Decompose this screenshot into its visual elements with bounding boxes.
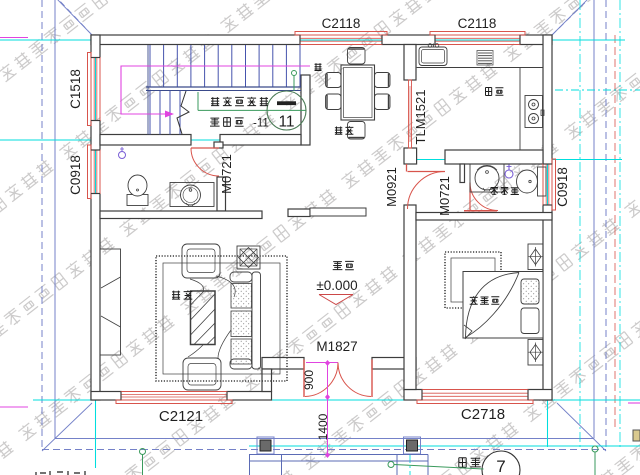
svg-text:C0918: C0918: [68, 155, 83, 195]
svg-text:C1518: C1518: [68, 69, 83, 109]
svg-text:1400: 1400: [316, 413, 330, 440]
svg-text:7: 7: [496, 457, 505, 475]
svg-text:C2121: C2121: [159, 408, 203, 425]
svg-text:M0921: M0921: [384, 167, 399, 207]
svg-text:C2118: C2118: [322, 16, 361, 31]
svg-text:M0721: M0721: [219, 154, 234, 194]
svg-text:C0918: C0918: [555, 167, 570, 207]
svg-text:-11: -11: [253, 117, 269, 129]
svg-text:900: 900: [302, 370, 316, 390]
svg-text:M1827: M1827: [316, 339, 357, 354]
svg-text:11: 11: [278, 114, 294, 131]
svg-text:±0.000: ±0.000: [316, 278, 357, 293]
svg-text:TLM1521: TLM1521: [413, 90, 428, 145]
svg-text:C2118: C2118: [458, 16, 497, 31]
svg-text:M0721: M0721: [437, 176, 452, 216]
svg-text:C2718: C2718: [461, 406, 505, 423]
